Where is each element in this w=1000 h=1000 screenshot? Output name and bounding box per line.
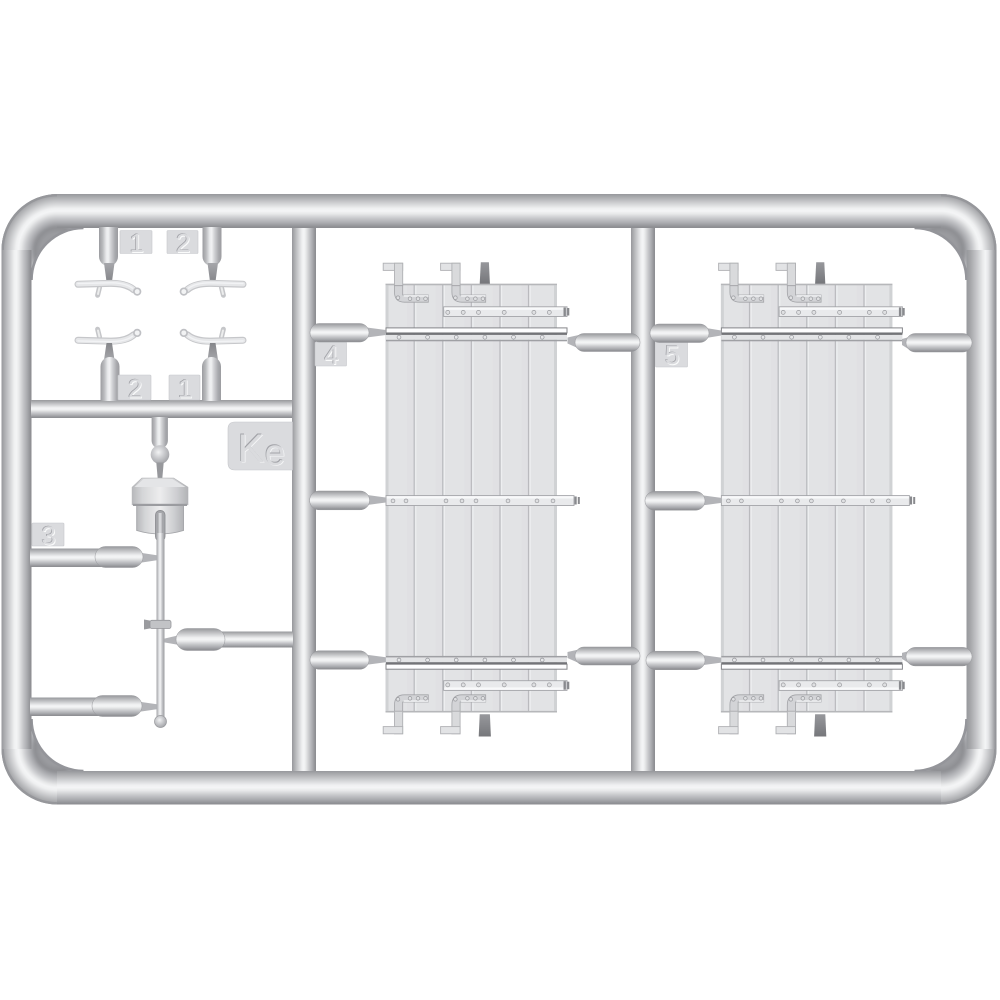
svg-text:1: 1 [178,374,192,404]
svg-text:5: 5 [665,340,680,370]
svg-text:3: 3 [42,521,56,551]
svg-text:2: 2 [128,374,142,404]
svg-text:e: e [265,432,286,473]
svg-text:4: 4 [324,340,338,370]
svg-text:2: 2 [176,228,190,258]
svg-text:K: K [238,427,265,471]
svg-text:1: 1 [130,228,144,258]
